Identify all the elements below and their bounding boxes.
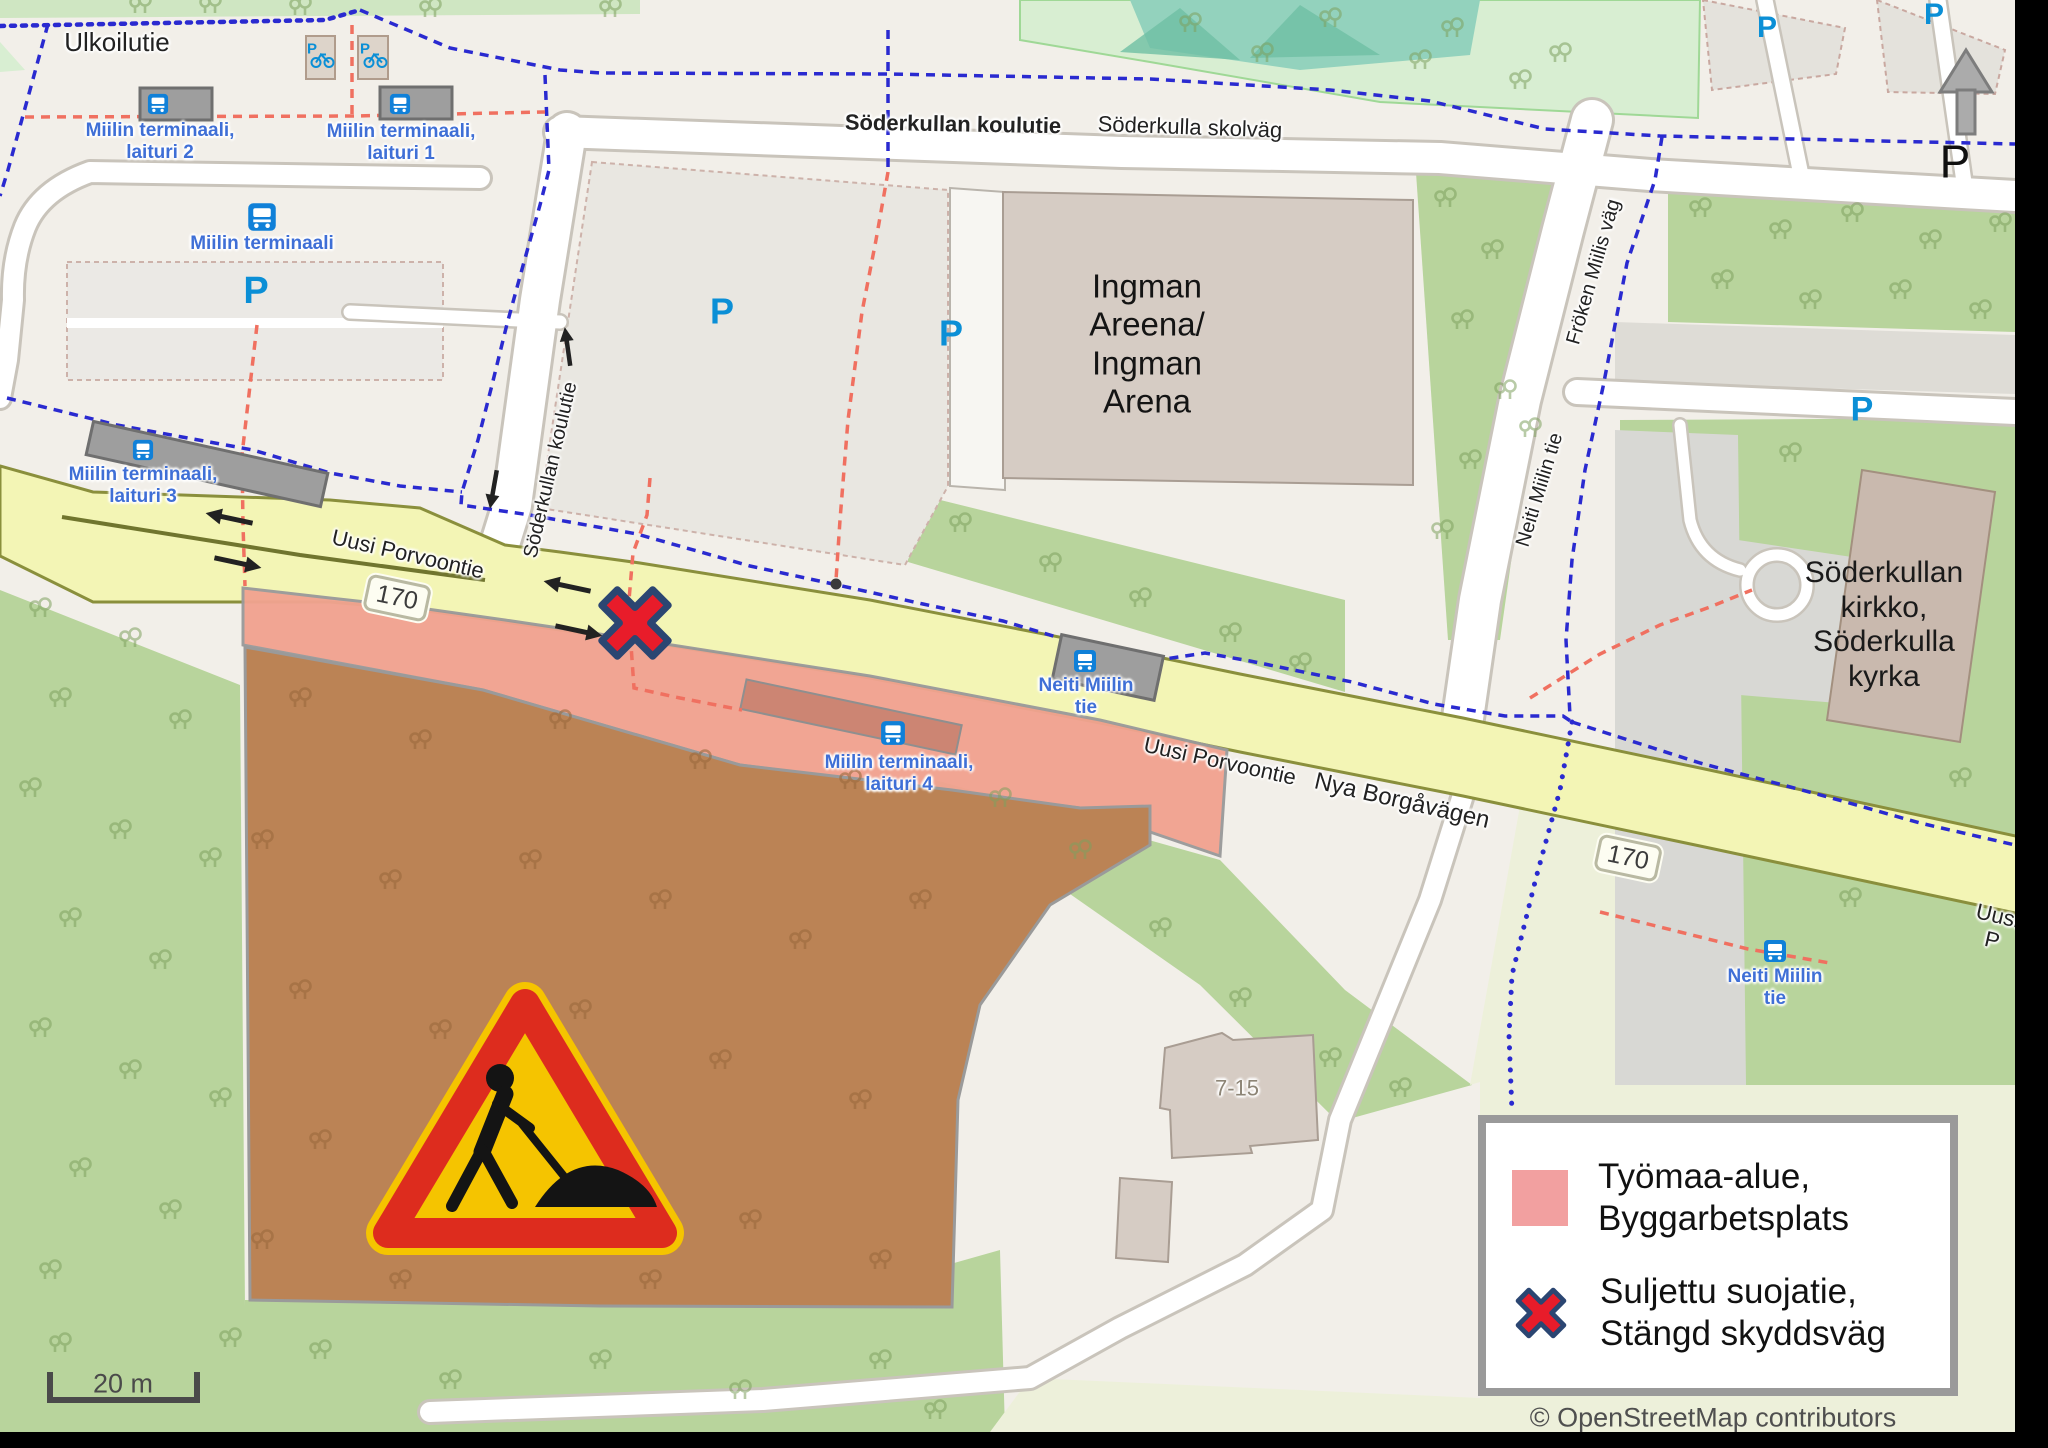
bus-stop-label: Neiti Miilin tie: [1039, 675, 1134, 719]
parking-p-mark: P: [1851, 390, 1874, 429]
bus-stop-icon: [1073, 649, 1097, 673]
right-black-bar: [2015, 0, 2048, 1448]
street-name-label: Uusi Porvoontie: [329, 524, 486, 584]
bus-stop-label: Miilin terminaali, laituri 3: [69, 464, 218, 508]
bus-stop-icon: [247, 202, 277, 232]
bicycle-parking-icon: P: [358, 40, 388, 75]
bicycle-parking-icon: P: [305, 40, 335, 75]
map-viewport: UlkoilutieSöderkullan koulutieSöderkulla…: [0, 0, 2048, 1448]
bus-stop-icon: [1763, 939, 1787, 963]
parking-p-mark: P: [939, 312, 963, 353]
street-name-label: Ulkoilutie: [64, 28, 170, 58]
street-name-label: Söderkulla skolväg: [1097, 111, 1282, 143]
bus-stop-icon: [389, 93, 411, 115]
bus-stop-label: Miilin terminaali: [190, 233, 334, 255]
parking-p-mark: P: [243, 270, 268, 314]
bus-stop-icon: [147, 93, 169, 115]
parking-p-mark: P: [1757, 11, 1777, 46]
street-name-label: Neiti Miilin tie: [1512, 430, 1568, 549]
bus-stop-icon: [132, 439, 154, 461]
place-name-label: Söderkullan kirkko, Söderkulla kyrka: [1802, 556, 1966, 694]
svg-text:P: P: [307, 41, 317, 58]
bus-stop-label: Miilin terminaali, laituri 1: [327, 121, 476, 165]
bus-stop-icon: [880, 720, 906, 746]
place-name-label: Ingman Areena/ Ingman Arena: [1089, 267, 1205, 420]
parking-p-mark: P: [1924, 0, 1944, 32]
parking-p-mark: P: [710, 290, 734, 331]
street-name-label: Fröken Miilis väg: [1562, 197, 1625, 348]
map-labels-layer: UlkoilutieSöderkullan koulutieSöderkulla…: [0, 0, 2048, 1448]
street-name-label: Nya Borgåvägen: [1312, 767, 1492, 834]
bus-stop-label: Neiti Miilin tie: [1728, 966, 1823, 1010]
parking-p-mark: P: [1940, 136, 1971, 189]
street-name-label: Söderkullan koulutie: [845, 109, 1062, 138]
route-shield-170: 170: [1593, 833, 1663, 882]
street-name-label: Uusi Porvoontie: [1141, 732, 1298, 790]
bus-stop-label: Miilin terminaali, laituri 2: [86, 120, 235, 164]
street-name-label: Söderkullan koulutie: [520, 380, 583, 561]
place-name-label: 7-15: [1215, 1075, 1259, 1100]
svg-text:P: P: [360, 41, 370, 58]
bus-stop-label: Miilin terminaali, laituri 4: [825, 752, 974, 796]
route-shield-170: 170: [362, 573, 432, 622]
bottom-black-bar: [0, 1432, 2048, 1448]
